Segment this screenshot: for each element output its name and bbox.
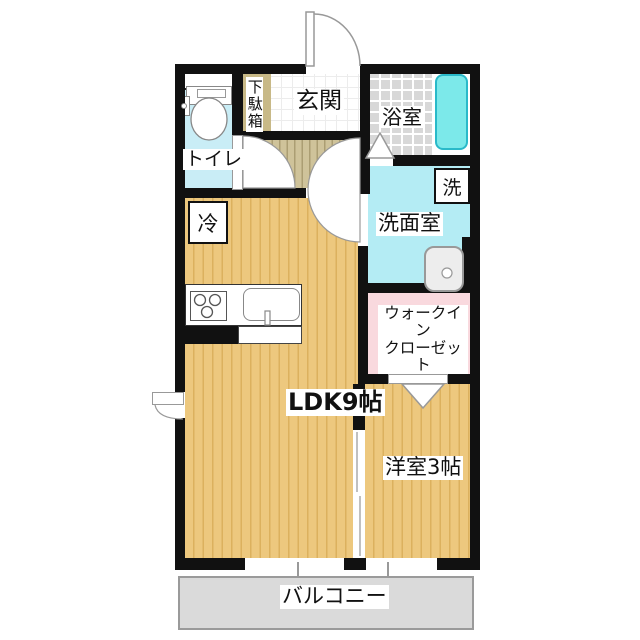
exterior-west-door-leaf: [152, 392, 184, 405]
sliding-door-ldk-western: [353, 430, 365, 558]
wall-washroom-left: [358, 246, 368, 383]
refrigerator-label: 冷: [198, 208, 219, 238]
wash-basin: [424, 246, 464, 292]
floor-plan: 洗 冷: [0, 0, 640, 640]
shoe-cabinet-label: 下駄箱: [246, 77, 263, 132]
wall-left-upper: [175, 64, 185, 392]
hallway-floor: [243, 140, 360, 188]
bathroom-door-opening: [370, 155, 393, 166]
wall-bath-washroom: [393, 155, 470, 166]
kitchen-sink: [243, 288, 300, 321]
refrigerator: 冷: [188, 201, 228, 244]
bathroom-label: 浴室: [380, 106, 424, 128]
stove: [190, 291, 227, 321]
window-ldk-south: [245, 558, 344, 570]
wall-right: [470, 64, 480, 570]
entrance-door-arc: [314, 14, 360, 66]
wall-top-right: [360, 64, 480, 74]
entrance-label: 玄関: [294, 89, 344, 115]
entrance-step: [232, 131, 360, 140]
western-room-label: 洋室3帖: [383, 456, 463, 480]
wall-left-lower: [175, 418, 185, 570]
washroom-door-opening: [358, 194, 368, 246]
washing-machine: 洗: [434, 168, 470, 204]
entrance-door-panel: [306, 12, 314, 66]
wall-wic-bottom-left: [358, 374, 388, 384]
bathtub: [435, 74, 468, 150]
hall-ldk-opening: [306, 188, 360, 198]
washer-label: 洗: [442, 173, 461, 200]
balcony-label: バルコニー: [280, 585, 389, 609]
entrance-door-opening: [306, 64, 360, 74]
washroom-label: 洗面室: [376, 212, 443, 236]
toilet-label: トイレ: [183, 149, 244, 170]
wall-wic-bottom-right: [448, 374, 470, 384]
kitchen-partition: [185, 326, 238, 344]
toilet-tank-lid: [197, 89, 226, 98]
wall-toilet-right: [232, 64, 243, 135]
ldk-floor: [185, 198, 358, 558]
wall-entrance-bath: [360, 64, 370, 194]
counter-ledge: [238, 326, 302, 344]
ldk-label: LDK9帖: [286, 389, 385, 416]
wic-door-leaf: [388, 374, 448, 384]
walk-in-closet-label: ウォークイン クローゼット: [378, 305, 468, 374]
window-western-room-south: [366, 558, 437, 570]
